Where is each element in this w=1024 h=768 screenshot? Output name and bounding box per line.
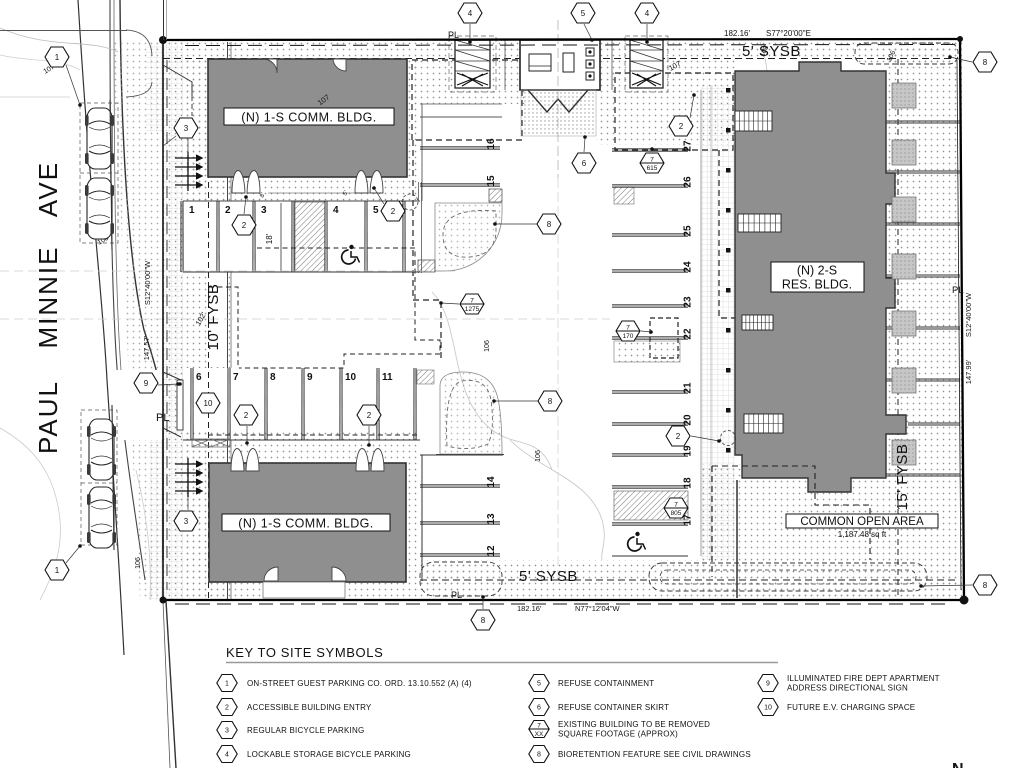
svg-text:RES. BLDG.: RES. BLDG.: [782, 278, 852, 292]
svg-text:27: 27: [683, 140, 694, 152]
svg-text:REGULAR BICYCLE PARKING: REGULAR BICYCLE PARKING: [247, 726, 364, 735]
svg-text:8: 8: [983, 581, 988, 590]
svg-text:S77°20'00"E: S77°20'00"E: [766, 29, 811, 38]
svg-text:FUTURE E.V. CHARGING SPACE: FUTURE E.V. CHARGING SPACE: [787, 703, 915, 712]
svg-text:7: 7: [674, 502, 678, 509]
svg-text:2: 2: [367, 411, 372, 420]
svg-text:3: 3: [184, 124, 189, 133]
svg-text:1275: 1275: [465, 306, 480, 313]
svg-text:5: 5: [537, 681, 541, 688]
svg-text:7: 7: [233, 372, 239, 383]
svg-text:182.16': 182.16': [724, 29, 750, 38]
svg-text:18': 18': [265, 233, 274, 244]
svg-text:5' SYSB: 5' SYSB: [519, 568, 578, 585]
svg-text:106: 106: [535, 450, 542, 462]
svg-text:16: 16: [486, 138, 497, 150]
svg-text:2: 2: [676, 432, 681, 441]
svg-text:4: 4: [468, 9, 473, 18]
svg-text:14: 14: [486, 476, 497, 488]
svg-text:106: 106: [135, 557, 142, 569]
svg-text:15: 15: [486, 175, 497, 187]
svg-text:1: 1: [225, 681, 229, 688]
svg-text:6: 6: [582, 159, 587, 168]
svg-text:7: 7: [537, 723, 541, 730]
svg-text:S12°40'00"W: S12°40'00"W: [964, 292, 973, 337]
svg-text:ACCESSIBLE BUILDING ENTRY: ACCESSIBLE BUILDING ENTRY: [247, 703, 372, 712]
svg-text:2: 2: [679, 122, 684, 131]
svg-text:147.99': 147.99': [964, 359, 973, 384]
svg-text:10: 10: [345, 372, 357, 383]
svg-text:18: 18: [683, 477, 694, 489]
svg-text:7: 7: [470, 298, 474, 305]
svg-text:8: 8: [270, 372, 276, 383]
svg-text:COMMON OPEN AREA: COMMON OPEN AREA: [800, 516, 924, 528]
svg-text:EXISTING BUILDING TO BE REMOVE: EXISTING BUILDING TO BE REMOVED: [558, 720, 710, 729]
svg-text:7: 7: [626, 325, 630, 332]
svg-text:SQUARE FOOTAGE (APPROX): SQUARE FOOTAGE (APPROX): [558, 730, 678, 739]
svg-text:1,187.48 sq ft: 1,187.48 sq ft: [838, 530, 887, 539]
svg-text:10: 10: [204, 399, 213, 408]
svg-text:8: 8: [481, 616, 486, 625]
svg-text:KEY TO SITE SYMBOLS: KEY TO SITE SYMBOLS: [226, 645, 383, 660]
svg-text:6: 6: [196, 372, 202, 383]
svg-text:9: 9: [766, 681, 770, 688]
svg-text:24: 24: [683, 261, 694, 273]
svg-text:10' FYSB: 10' FYSB: [205, 284, 222, 351]
svg-text:ADDRESS DIRECTIONAL SIGN: ADDRESS DIRECTIONAL SIGN: [787, 684, 908, 693]
svg-text:13: 13: [486, 513, 497, 525]
svg-text:12: 12: [486, 545, 497, 557]
svg-text:6: 6: [537, 705, 541, 712]
svg-text:25: 25: [683, 225, 694, 237]
svg-text:11: 11: [382, 372, 393, 383]
svg-text:LOCKABLE STORAGE BICYCLE PARKI: LOCKABLE STORAGE BICYCLE PARKING: [247, 750, 411, 759]
svg-text:N77°12'04"W: N77°12'04"W: [575, 604, 621, 613]
svg-text:2: 2: [391, 207, 396, 216]
svg-text:1: 1: [189, 205, 195, 216]
svg-text:4: 4: [225, 752, 229, 759]
svg-text:147.57': 147.57': [142, 335, 151, 360]
svg-text:5: 5: [373, 205, 379, 216]
svg-text:17: 17: [683, 514, 694, 526]
svg-text:ON-STREET GUEST PARKING CO. OR: ON-STREET GUEST PARKING CO. ORD. 13.10.5…: [247, 679, 472, 688]
svg-text:REFUSE CONTAINMENT: REFUSE CONTAINMENT: [558, 679, 654, 688]
svg-text:19: 19: [683, 445, 694, 457]
svg-text:8: 8: [547, 220, 552, 229]
svg-text:3: 3: [225, 728, 229, 735]
svg-text:182.16': 182.16': [517, 604, 542, 613]
svg-text:8: 8: [548, 397, 553, 406]
svg-text:3: 3: [184, 517, 189, 526]
svg-text:22: 22: [683, 328, 694, 340]
svg-text:615: 615: [647, 165, 658, 172]
svg-text:5' SYSB: 5' SYSB: [742, 43, 801, 60]
svg-text:ILLUMINATED FIRE DEPT APARTMEN: ILLUMINATED FIRE DEPT APARTMENT: [787, 674, 940, 683]
svg-text:805: 805: [671, 510, 682, 517]
svg-text:S12°40'00"W: S12°40'00"W: [143, 260, 152, 305]
svg-text:8: 8: [537, 752, 541, 759]
svg-text:3: 3: [261, 205, 267, 216]
svg-text:7: 7: [650, 157, 654, 164]
svg-text:PL: PL: [156, 412, 169, 424]
svg-text:1: 1: [55, 53, 60, 62]
svg-text:1: 1: [55, 566, 60, 575]
svg-text:(N) 1-S COMM. BLDG.: (N) 1-S COMM. BLDG.: [241, 111, 376, 125]
svg-text:170: 170: [623, 333, 634, 340]
svg-text:PAUL: PAUL: [33, 380, 63, 454]
svg-text:PL: PL: [448, 30, 459, 40]
svg-text:N: N: [952, 761, 964, 768]
svg-text:9: 9: [144, 379, 149, 388]
svg-text:2: 2: [244, 411, 249, 420]
svg-text:(N) 1-S COMM. BLDG.: (N) 1-S COMM. BLDG.: [238, 517, 373, 531]
svg-text:4: 4: [333, 205, 339, 216]
svg-text:2: 2: [225, 205, 231, 216]
svg-text:8: 8: [983, 58, 988, 67]
svg-text:MINNIE: MINNIE: [33, 246, 63, 349]
svg-text:2: 2: [242, 221, 247, 230]
svg-text:20: 20: [683, 414, 694, 426]
svg-text:10: 10: [764, 705, 772, 712]
svg-text:15' FYSB: 15' FYSB: [894, 444, 911, 511]
svg-text:2: 2: [225, 705, 229, 712]
svg-text:23: 23: [683, 296, 694, 308]
svg-text:106: 106: [484, 340, 491, 352]
svg-text:BIORETENTION FEATURE SEE CIVIL: BIORETENTION FEATURE SEE CIVIL DRAWINGS: [558, 750, 751, 759]
svg-text:PL: PL: [952, 285, 964, 296]
svg-text:5: 5: [581, 9, 586, 18]
svg-text:XX: XX: [535, 731, 544, 738]
svg-text:REFUSE CONTAINER SKIRT: REFUSE CONTAINER SKIRT: [558, 703, 669, 712]
svg-text:4: 4: [645, 9, 650, 18]
svg-text:26: 26: [683, 176, 694, 188]
svg-text:AVE: AVE: [33, 161, 63, 217]
svg-text:9: 9: [307, 372, 313, 383]
svg-text:(N) 2-S: (N) 2-S: [797, 264, 837, 278]
svg-text:21: 21: [683, 382, 694, 394]
